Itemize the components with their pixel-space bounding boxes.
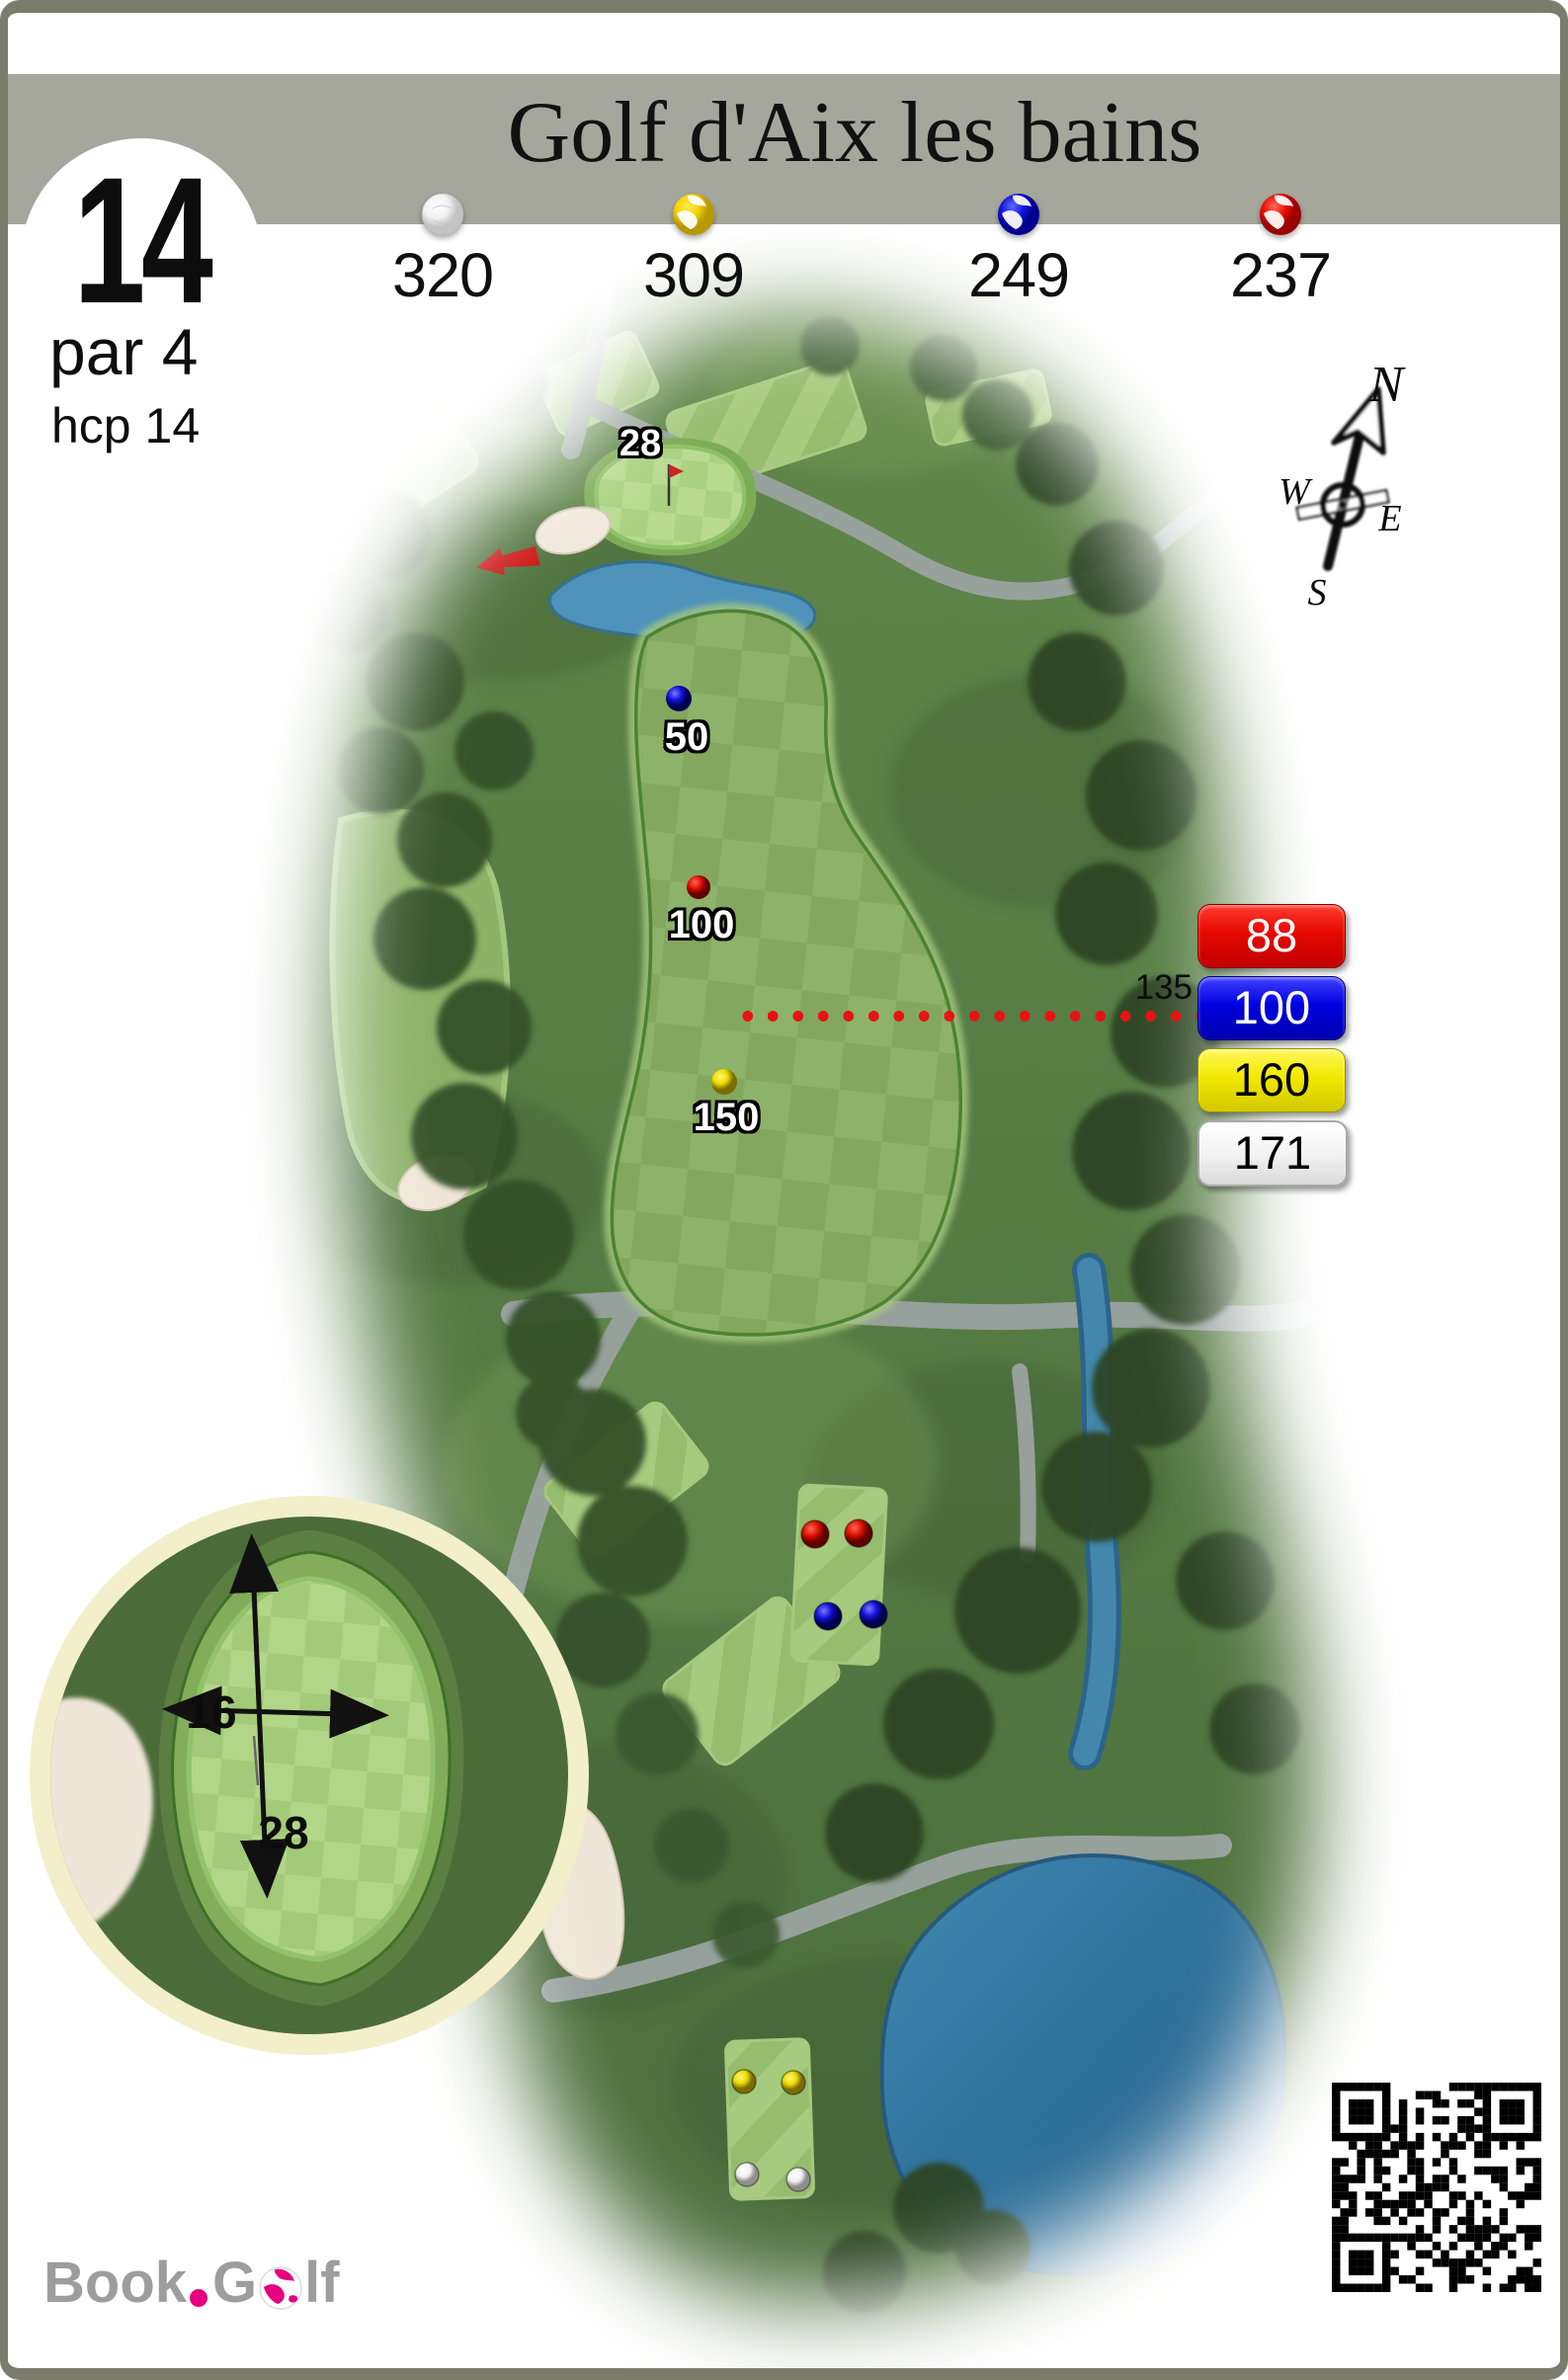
- green-depth-label: 28: [591, 423, 690, 465]
- distance-box-yellow: 160: [1197, 1048, 1346, 1112]
- logo-book-text: Book: [43, 2255, 187, 2312]
- compass-west: W: [1279, 471, 1313, 513]
- tee-distance: 309: [610, 240, 778, 311]
- compass-south: S: [1308, 572, 1327, 614]
- inset-green: [189, 1579, 433, 1959]
- hole-par: par 4: [49, 314, 198, 389]
- marker-50-label: 50: [637, 715, 736, 760]
- distance-box-column: 88 100 160 171: [1197, 904, 1348, 1194]
- logo-lf-text: lf: [304, 2255, 339, 2312]
- tee-distance: 237: [1197, 240, 1364, 311]
- logo-globe-icon: [258, 2265, 303, 2311]
- blue-globe-icon: [996, 192, 1041, 237]
- distance-box-red-value: 88: [1246, 909, 1297, 961]
- tee-distance: 249: [935, 240, 1103, 311]
- green-depth-detail-label: 28: [234, 1806, 333, 1859]
- yardage-book-page: Golf d'Aix les bains 14 par 4 hcp 14 320…: [0, 0, 1568, 2380]
- compass-rose: N W E S: [1265, 326, 1462, 622]
- book-golf-logo: Book G lf: [43, 2255, 340, 2312]
- cross-distance-label: 135: [1084, 968, 1193, 1008]
- dotted-distance-line: [735, 1010, 1213, 1023]
- white-golfball-icon: [420, 192, 465, 237]
- tee-red: 237: [1197, 192, 1364, 311]
- green-detail-inset: [25, 1491, 594, 2060]
- distance-box-blue-value: 100: [1233, 981, 1310, 1033]
- hole-number: 14: [54, 150, 228, 330]
- compass-north: N: [1368, 357, 1407, 413]
- tee-yellow: 309: [610, 192, 778, 311]
- distance-box-white: 171: [1197, 1120, 1348, 1187]
- red-globe-icon: [1258, 192, 1303, 237]
- tee-white: 320: [359, 192, 527, 311]
- tee-blue: 249: [935, 192, 1103, 311]
- distance-box-white-value: 171: [1234, 1126, 1311, 1179]
- page-title: Golf d'Aix les bains: [395, 83, 1314, 183]
- distance-box-yellow-value: 160: [1233, 1053, 1310, 1106]
- tee-distance: 320: [359, 240, 527, 311]
- green-width-label: 16: [160, 1685, 263, 1739]
- marker-100-label: 100: [647, 903, 756, 947]
- yellow-globe-icon: [671, 192, 716, 237]
- qr-code: [1332, 2083, 1541, 2292]
- logo-dot: [190, 2289, 207, 2307]
- distance-box-blue: 100: [1197, 976, 1346, 1040]
- compass-east: E: [1377, 498, 1401, 539]
- marker-150-label: 150: [672, 1096, 781, 1140]
- hole-handicap: hcp 14: [51, 397, 200, 454]
- distance-box-red: 88: [1197, 904, 1346, 968]
- logo-g-text: G: [212, 2255, 257, 2312]
